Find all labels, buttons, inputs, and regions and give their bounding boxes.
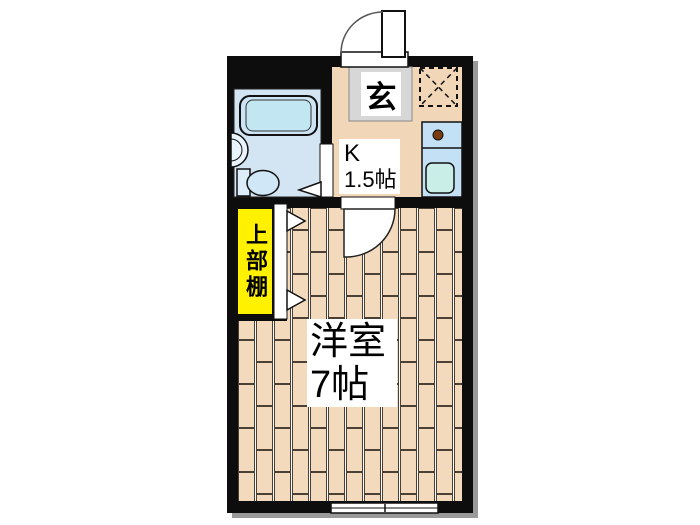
bathroom-door-opening [320,144,333,197]
room-door-threshold [341,197,395,209]
entrance-label: 玄 [361,72,401,116]
toilet-bowl [247,171,279,196]
entrance-door-leaf [382,11,405,57]
burner-icon [433,130,443,140]
western-room-label-line2: 7帖 [310,364,397,407]
western-room-label: 洋室 7帖 [307,319,397,407]
bathtub-inner [246,100,311,131]
kitchen-label-line1: K [344,141,400,167]
floorplan-canvas: 玄 K 1.5帖 上部棚 洋室 7帖 [0,0,700,525]
closet-door-strip [274,204,287,319]
kitchen-sink [426,163,454,193]
western-room-label-line1: 洋室 [310,321,397,364]
floorplan-drawing [0,0,700,525]
kitchen-label: K 1.5帖 [339,139,400,194]
entrance-door-arc [341,12,383,53]
kitchen-label-line2: 1.5帖 [344,167,400,193]
closet-shelf-label: 上部棚 [239,210,271,313]
